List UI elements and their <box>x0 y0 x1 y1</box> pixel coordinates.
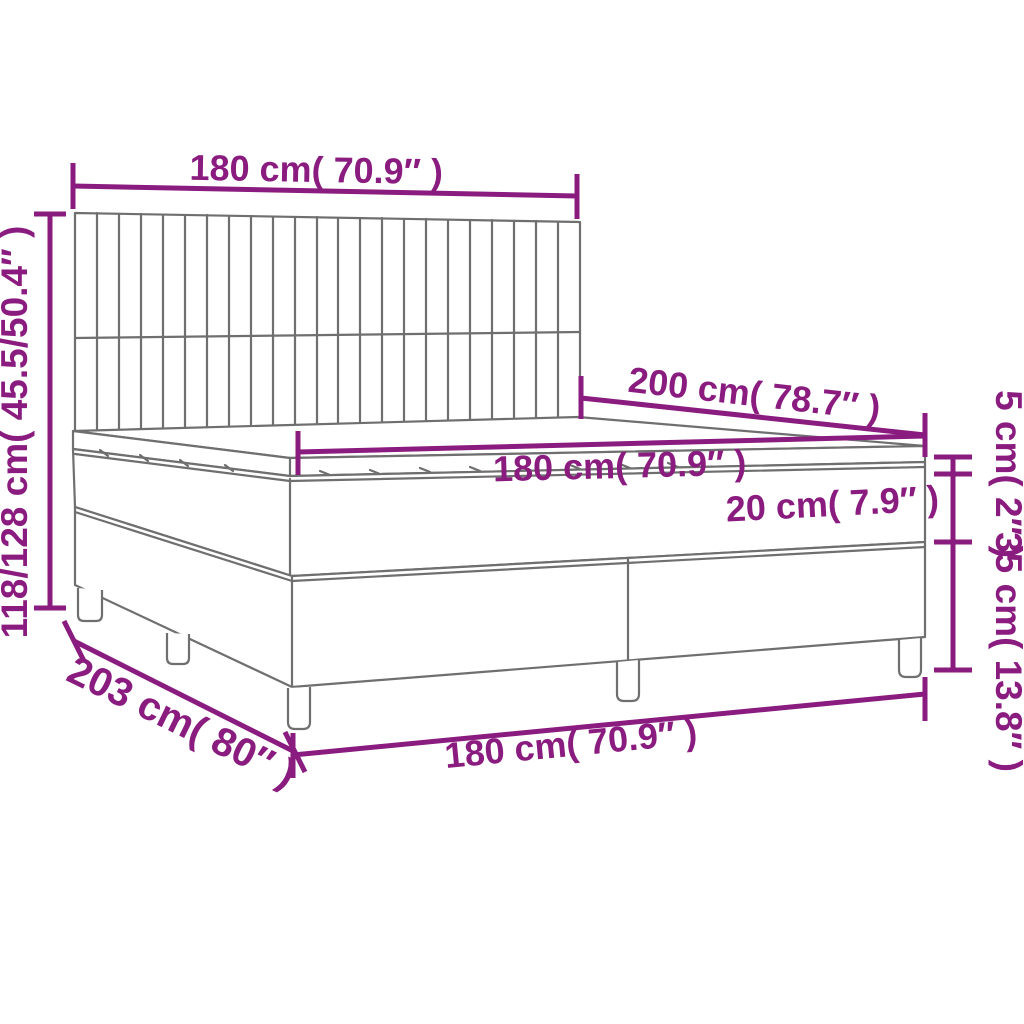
label-total-height: 118/128 cm( 45.5/50.4″ ) <box>0 226 35 639</box>
dim-total-height <box>34 214 66 608</box>
leg <box>617 660 639 701</box>
label-mattress-width: 180 cm( 70.9″ ) <box>492 442 746 490</box>
bed-dimension-diagram: 180 cm( 70.9″ ) 118/128 cm( 45.5/50.4″ )… <box>0 0 1024 1024</box>
headboard <box>75 213 580 436</box>
dim-height-bracket <box>934 457 972 670</box>
label-base-width: 180 cm( 70.9″ ) <box>443 711 699 776</box>
headboard-panel <box>75 213 580 436</box>
label-headboard-width: 180 cm( 70.9″ ) <box>189 147 443 192</box>
leg <box>167 633 189 664</box>
bed-dimension-diagram-page: 180 cm( 70.9″ ) 118/128 cm( 45.5/50.4″ )… <box>0 0 1024 1024</box>
leg <box>288 687 310 729</box>
leg <box>78 588 102 621</box>
leg <box>899 638 921 677</box>
label-base-height: 35 cm( 13.8″ ) <box>988 532 1024 772</box>
